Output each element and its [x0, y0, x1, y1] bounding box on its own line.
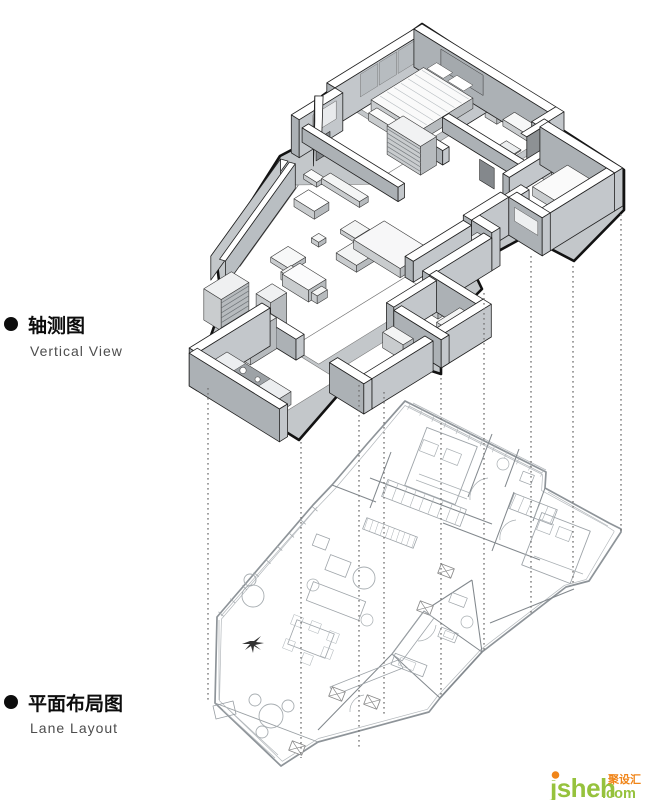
svg-text:Lane Layout: Lane Layout	[30, 720, 118, 736]
svg-text:Vertical View: Vertical View	[30, 343, 123, 359]
svg-text:.com: .com	[602, 786, 636, 800]
svg-text:轴测图: 轴测图	[28, 314, 85, 337]
svg-text:平面布局图: 平面布局图	[28, 692, 123, 715]
svg-text:聚设汇: 聚设汇	[607, 772, 641, 786]
